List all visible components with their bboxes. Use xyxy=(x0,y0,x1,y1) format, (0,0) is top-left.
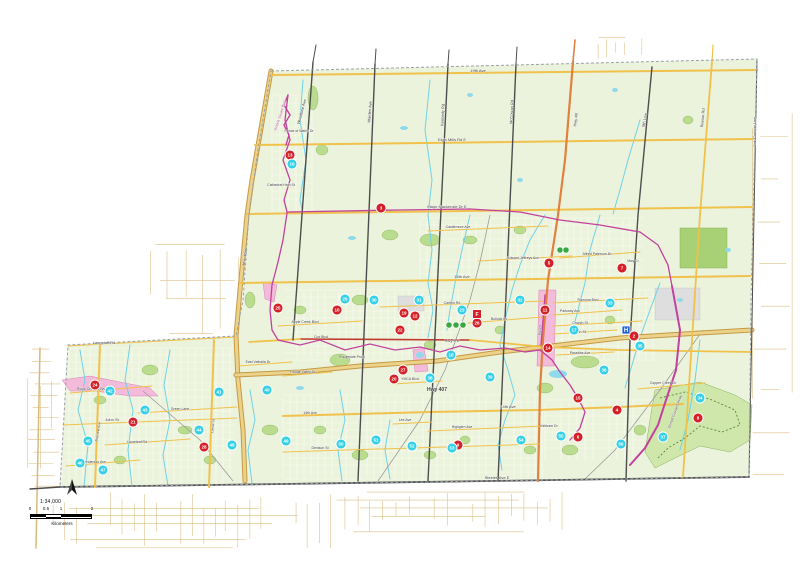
svg-text:20: 20 xyxy=(391,377,397,382)
road-steeles-w xyxy=(30,487,60,489)
svg-text:23: 23 xyxy=(459,308,465,313)
label-cox-blvd: Cox Blvd xyxy=(314,335,328,339)
pond-7 xyxy=(677,298,683,302)
park-area-13 xyxy=(245,292,255,308)
marker-cyan-53[interactable]: 53 xyxy=(447,443,457,453)
scale-bar: 0 0.5 1 2 Kilometers xyxy=(30,506,110,530)
pond-8 xyxy=(725,248,731,252)
svg-text:54: 54 xyxy=(518,438,524,443)
marker-green-3[interactable] xyxy=(557,247,563,253)
svg-text:36: 36 xyxy=(601,368,607,373)
label-green-lane: Green Lane xyxy=(171,407,190,411)
svg-text:50: 50 xyxy=(338,442,344,447)
label-john-st: John St xyxy=(105,417,119,422)
marker-red-6[interactable]: 6 xyxy=(573,432,583,442)
park-area-14 xyxy=(262,425,278,435)
svg-text:34: 34 xyxy=(697,396,703,401)
marker-red-10[interactable]: 10 xyxy=(332,305,342,315)
pond-2 xyxy=(517,178,523,182)
park-area-1 xyxy=(316,145,328,155)
marker-cyan-44[interactable]: 44 xyxy=(194,425,204,435)
label-east-valhalla-dr: East Valhalla Dr xyxy=(246,360,272,364)
svg-text:21: 21 xyxy=(130,420,136,425)
label-16th-ave: 16th Ave xyxy=(454,274,470,279)
marker-red-26[interactable]: 26 xyxy=(472,318,482,328)
marker-cyan-56[interactable]: 56 xyxy=(616,439,626,449)
label-hwy-7-e: Hwy 7 E xyxy=(445,338,460,343)
marker-cyan-35[interactable]: 35 xyxy=(635,341,645,351)
label-cathedral-high-st: Cathedral High St xyxy=(267,183,295,187)
pond-0 xyxy=(400,126,408,130)
marker-cyan-30[interactable]: 30 xyxy=(369,295,379,305)
marker-cyan-51[interactable]: 51 xyxy=(371,435,381,445)
svg-text:56: 56 xyxy=(618,442,624,447)
marker-green-4[interactable] xyxy=(563,247,569,253)
label-castlemore-ave: Castlemore Ave xyxy=(446,225,471,229)
svg-text:29: 29 xyxy=(342,297,348,302)
svg-text:46: 46 xyxy=(77,461,83,466)
road-hwy-48-n xyxy=(573,40,575,62)
marker-red-square-F[interactable]: F xyxy=(473,310,482,319)
label-denison-st: Denison St xyxy=(311,446,328,450)
label-rougeside-prom: Rougeside Prom xyxy=(339,355,365,359)
svg-text:19: 19 xyxy=(401,311,407,316)
marker-red-28[interactable]: 28 xyxy=(199,442,209,452)
svg-text:48: 48 xyxy=(229,443,235,448)
label-highglen-ave: Highglen Ave xyxy=(452,425,473,429)
svg-text:33: 33 xyxy=(607,301,613,306)
svg-text:16: 16 xyxy=(289,162,295,167)
scale-tick-0: 0 xyxy=(29,506,32,511)
greenspace-block-0 xyxy=(680,228,727,268)
label-elgin-mills-rd-e: Elgin Mills Rd E xyxy=(438,137,466,142)
marker-red-14[interactable]: 14 xyxy=(543,343,553,353)
svg-text:F: F xyxy=(475,312,478,318)
context-street-grid-2 xyxy=(28,349,61,486)
svg-text:26: 26 xyxy=(474,321,480,326)
park-area-3 xyxy=(382,230,398,240)
marker-cyan-52[interactable]: 52 xyxy=(407,441,417,451)
marker-red-22[interactable]: 22 xyxy=(395,325,405,335)
marker-cyan-43[interactable]: 43 xyxy=(140,405,150,415)
svg-text:39: 39 xyxy=(487,375,493,380)
context-street-grid-3 xyxy=(150,245,238,334)
park-area-25 xyxy=(114,456,126,464)
marker-cyan-49[interactable]: 49 xyxy=(281,436,291,446)
label-major-mackenzie-dr-e: Major Mackenzie Dr E xyxy=(427,204,467,209)
svg-text:31: 31 xyxy=(416,298,422,303)
marker-cyan-38[interactable]: 38 xyxy=(425,373,435,383)
svg-text:12: 12 xyxy=(412,314,418,319)
marker-red-3[interactable]: 3 xyxy=(376,203,386,213)
marker-cyan-23[interactable]: 23 xyxy=(457,305,467,315)
road-reesor-stub xyxy=(712,45,713,62)
svg-text:44: 44 xyxy=(196,428,202,433)
marker-cyan-34[interactable]: 34 xyxy=(695,393,705,403)
marker-cyan-46[interactable]: 46 xyxy=(75,458,85,468)
road-warden-stub xyxy=(375,49,376,64)
marker-red-24[interactable]: 24 xyxy=(90,380,100,390)
svg-text:53: 53 xyxy=(449,446,455,451)
park-area-16 xyxy=(352,450,368,460)
marker-cyan-55[interactable]: 55 xyxy=(556,431,566,441)
marker-red-11[interactable]: 11 xyxy=(540,305,550,315)
svg-text:51: 51 xyxy=(373,438,379,443)
label-apple-creek-blvd: Apple Creek Blvd xyxy=(291,320,318,324)
marker-cyan-47[interactable]: 47 xyxy=(98,465,108,475)
label-laureleaf-rd: Laureleaf Rd xyxy=(127,440,147,444)
svg-text:35: 35 xyxy=(637,344,643,349)
label-19th-ave: 19th Ave xyxy=(470,68,486,73)
pond-3 xyxy=(612,88,618,92)
label-church-st: Church St xyxy=(572,321,588,325)
marker-cyan-33[interactable]: 33 xyxy=(605,298,615,308)
park-area-11 xyxy=(571,356,599,368)
marker-cyan-29[interactable]: 29 xyxy=(340,294,350,304)
label-14th-ave: 14th Ave xyxy=(303,411,317,415)
label-mary-cr: Mary Cr xyxy=(627,259,639,263)
svg-text:13: 13 xyxy=(287,153,293,158)
svg-text:40: 40 xyxy=(264,388,270,393)
svg-text:43: 43 xyxy=(142,408,148,413)
svg-text:41: 41 xyxy=(216,390,222,395)
svg-text:55: 55 xyxy=(558,434,564,439)
hospital-marker[interactable]: H xyxy=(622,326,630,334)
marker-red-13[interactable]: 13 xyxy=(285,150,295,160)
pond-6 xyxy=(296,386,304,390)
marker-cyan-48[interactable]: 48 xyxy=(227,440,237,450)
park-area-22 xyxy=(142,365,158,375)
marker-red-21[interactable]: 21 xyxy=(128,417,138,427)
svg-text:24: 24 xyxy=(92,383,98,388)
marker-green-2[interactable] xyxy=(460,322,466,328)
label-carlton-rd: Carlton Rd xyxy=(444,301,461,305)
svg-text:18: 18 xyxy=(448,353,454,358)
label-paradise-ave: Paradise Ave xyxy=(570,351,591,355)
svg-text:25: 25 xyxy=(275,306,281,311)
marker-cyan-31[interactable]: 31 xyxy=(414,295,424,305)
park-area-27 xyxy=(683,116,693,124)
label-14th-ave: 14th Ave xyxy=(500,404,516,409)
context-street-grid-4 xyxy=(752,113,792,474)
marker-cyan-54[interactable]: 54 xyxy=(516,435,526,445)
label-steeles-ave-e: Steeles Ave E xyxy=(485,475,510,480)
marker-cyan-37[interactable]: 37 xyxy=(658,432,668,442)
label-prince-of-wales-dr: Prince of Wales Dr xyxy=(284,129,314,133)
marker-green-1[interactable] xyxy=(453,322,459,328)
svg-text:28: 28 xyxy=(201,445,207,450)
svg-text:49: 49 xyxy=(283,439,289,444)
marker-red-12[interactable]: 12 xyxy=(410,311,420,321)
scale-ratio-label: 1:34,000 xyxy=(40,499,61,505)
label-lee-ave: Lee Ave xyxy=(399,418,412,422)
svg-text:37: 37 xyxy=(660,435,666,440)
label-copper-creek-dr: Copper Creek Dr xyxy=(650,381,677,385)
marker-red-7[interactable]: 7 xyxy=(617,263,627,273)
svg-text:22: 22 xyxy=(397,328,403,333)
marker-green-0[interactable] xyxy=(446,322,452,328)
svg-text:30: 30 xyxy=(371,298,377,303)
markham-pathways-map-page: 19th AveElgin Mills Rd EMajor Mackenzie … xyxy=(0,0,800,562)
marker-red-2[interactable]: 2 xyxy=(629,331,639,341)
park-area-15 xyxy=(314,426,326,434)
marker-red-8[interactable]: 8 xyxy=(693,413,703,423)
marker-red-15[interactable]: 15 xyxy=(573,393,583,403)
park-area-19 xyxy=(524,446,536,454)
pond-9 xyxy=(416,352,424,358)
svg-text:27: 27 xyxy=(400,368,406,373)
label-kirkham-dr: Kirkham Dr xyxy=(540,424,558,428)
marker-red-19[interactable]: 19 xyxy=(399,308,409,318)
scale-bar-graphic xyxy=(30,514,92,519)
label-ymca-blvd: YMCA Blvd xyxy=(401,377,419,381)
marker-cyan-39[interactable]: 39 xyxy=(485,372,495,382)
marker-cyan-40[interactable]: 40 xyxy=(262,385,272,395)
marker-red-20[interactable]: 20 xyxy=(389,374,399,384)
svg-text:15: 15 xyxy=(575,396,581,401)
svg-text:38: 38 xyxy=(427,376,433,381)
svg-text:17: 17 xyxy=(571,328,577,333)
marker-cyan-36[interactable]: 36 xyxy=(599,365,609,375)
scale-tick-05: 0.5 xyxy=(43,506,49,511)
scale-unit-label: Kilometers xyxy=(44,521,80,526)
label-rouge-valley-dr: Rouge Valley Dr xyxy=(290,370,316,374)
scale-tick-1: 1 xyxy=(60,506,63,511)
svg-text:47: 47 xyxy=(100,468,106,473)
park-area-21 xyxy=(634,425,646,435)
svg-text:32: 32 xyxy=(517,298,523,303)
marker-cyan-45[interactable]: 45 xyxy=(83,436,93,446)
label-parkway-ave: Parkway Ave xyxy=(560,309,580,313)
scale-tick-2: 2 xyxy=(91,506,94,511)
marker-cyan-16[interactable]: 16 xyxy=(287,159,297,169)
label-york-durham-line: York Durham Line xyxy=(753,117,757,147)
pond-4 xyxy=(348,236,356,240)
svg-text:42: 42 xyxy=(107,389,113,394)
marker-red-27[interactable]: 27 xyxy=(398,365,408,375)
marker-red-25[interactable]: 25 xyxy=(273,303,283,313)
marker-cyan-17[interactable]: 17 xyxy=(569,325,579,335)
map-canvas: 19th AveElgin Mills Rd EMajor Mackenzie … xyxy=(0,0,800,562)
svg-text:14: 14 xyxy=(545,346,551,351)
svg-text:11: 11 xyxy=(543,308,548,313)
label-alfred-paterson-dr: Alfred Paterson Dr xyxy=(583,252,613,256)
park-area-23 xyxy=(94,396,106,404)
pond-1 xyxy=(467,93,473,97)
park-area-20 xyxy=(562,445,578,455)
context-street-grid-5 xyxy=(598,38,642,59)
marker-cyan-18[interactable]: 18 xyxy=(446,350,456,360)
marker-cyan-50[interactable]: 50 xyxy=(336,439,346,449)
marker-cyan-41[interactable]: 41 xyxy=(214,387,224,397)
marker-cyan-32[interactable]: 32 xyxy=(515,295,525,305)
label-henderson-ave: Henderson Ave xyxy=(82,460,106,464)
label-langstaff-rd: Langstaff Rd xyxy=(93,340,116,345)
north-arrow-icon xyxy=(62,478,82,498)
label-hwy-407: Hwy 407 xyxy=(427,387,447,393)
label-bullock-dr: Bullock Dr xyxy=(491,317,508,321)
label-main-st: Main St xyxy=(538,324,542,335)
svg-text:45: 45 xyxy=(85,439,91,444)
svg-text:H: H xyxy=(624,328,628,334)
label-ramona-blvd: Ramona Blvd xyxy=(577,298,598,302)
marker-red-5[interactable]: 5 xyxy=(544,258,554,268)
marker-cyan-42[interactable]: 42 xyxy=(105,386,115,396)
svg-text:10: 10 xyxy=(334,308,340,313)
road-kennedy-stub xyxy=(448,50,449,64)
label-edward-jeffreys-ave: Edward Jeffreys Ave xyxy=(507,256,539,260)
marker-red-4[interactable]: 4 xyxy=(612,405,622,415)
road-mccowan-stub xyxy=(516,47,517,64)
context-street-grid-1 xyxy=(337,492,562,532)
road-woodbine-stub xyxy=(313,45,316,62)
svg-text:52: 52 xyxy=(409,444,415,449)
